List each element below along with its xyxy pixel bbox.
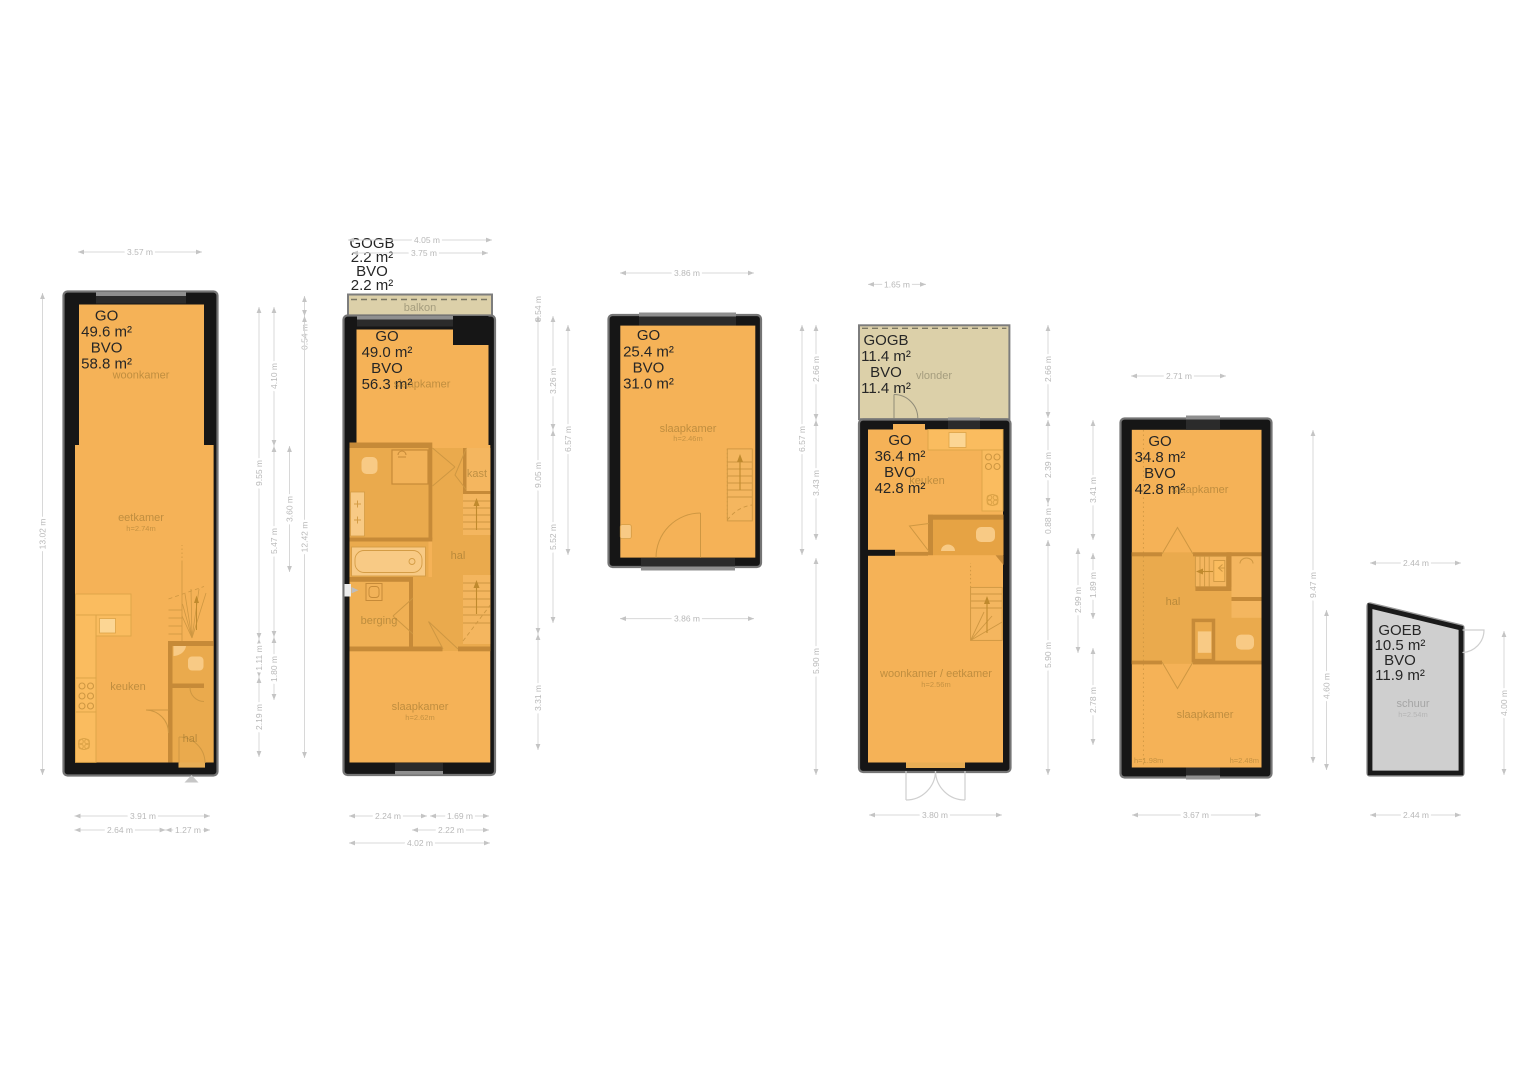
- svg-text:11.4 m²: 11.4 m²: [861, 380, 911, 397]
- svg-text:49.0 m²: 49.0 m²: [362, 344, 413, 361]
- svg-text:3.60 m: 3.60 m: [285, 496, 295, 522]
- svg-text:11.4 m²: 11.4 m²: [861, 348, 911, 365]
- svg-text:2.44 m: 2.44 m: [1403, 810, 1429, 820]
- svg-text:2.22 m: 2.22 m: [438, 825, 464, 835]
- svg-text:2.39 m: 2.39 m: [1043, 452, 1053, 478]
- svg-text:GO: GO: [1148, 433, 1171, 450]
- svg-text:49.6 m²: 49.6 m²: [81, 324, 132, 341]
- svg-text:9.05 m: 9.05 m: [533, 462, 543, 488]
- svg-text:keuken: keuken: [110, 681, 145, 693]
- svg-text:1.89 m: 1.89 m: [1088, 572, 1098, 598]
- svg-text:hal: hal: [451, 550, 466, 562]
- svg-text:4.02 m: 4.02 m: [407, 838, 433, 848]
- svg-text:slaapkamer: slaapkamer: [1172, 484, 1229, 496]
- svg-text:1.80 m: 1.80 m: [269, 656, 279, 682]
- svg-text:1.27 m: 1.27 m: [175, 825, 201, 835]
- svg-text:h=1.98m: h=1.98m: [1134, 756, 1163, 765]
- svg-text:4.05 m: 4.05 m: [414, 235, 440, 245]
- svg-text:3.26 m: 3.26 m: [548, 368, 558, 394]
- svg-text:BVO: BVO: [371, 360, 403, 377]
- svg-text:4.00 m: 4.00 m: [1499, 690, 1509, 716]
- svg-text:BVO: BVO: [1144, 465, 1176, 482]
- svg-text:hal: hal: [183, 733, 198, 745]
- svg-text:3.31 m: 3.31 m: [533, 685, 543, 711]
- svg-text:3.57 m: 3.57 m: [127, 247, 153, 257]
- svg-text:13.02 m: 13.02 m: [38, 519, 48, 550]
- svg-text:5.52 m: 5.52 m: [548, 524, 558, 550]
- svg-text:3.41 m: 3.41 m: [1088, 477, 1098, 503]
- svg-text:6.57 m: 6.57 m: [563, 426, 573, 452]
- svg-text:slaapkamer: slaapkamer: [1177, 709, 1234, 721]
- svg-text:2.71 m: 2.71 m: [1166, 371, 1192, 381]
- svg-text:2.78 m: 2.78 m: [1088, 687, 1098, 713]
- svg-text:1.11 m: 1.11 m: [254, 645, 264, 670]
- svg-text:kast: kast: [467, 468, 487, 480]
- svg-text:11.9 m²: 11.9 m²: [1375, 667, 1425, 684]
- svg-text:GO: GO: [637, 327, 660, 344]
- svg-text:2.24 m: 2.24 m: [375, 811, 401, 821]
- svg-text:4.10 m: 4.10 m: [269, 363, 279, 389]
- svg-text:BVO: BVO: [633, 360, 665, 377]
- svg-text:3.43 m: 3.43 m: [811, 470, 821, 496]
- svg-text:6.57 m: 6.57 m: [797, 426, 807, 452]
- svg-text:GO: GO: [95, 308, 118, 325]
- svg-text:h=2.48m: h=2.48m: [1230, 756, 1259, 765]
- svg-text:berging: berging: [361, 615, 398, 627]
- svg-text:3.91 m: 3.91 m: [130, 811, 156, 821]
- svg-text:3.80 m: 3.80 m: [922, 810, 948, 820]
- svg-text:GOGB: GOGB: [863, 332, 908, 349]
- svg-text:12.42 m: 12.42 m: [300, 522, 310, 553]
- svg-text:woonkamer / eetkamer: woonkamer / eetkamer: [879, 668, 992, 680]
- svg-text:4.60 m: 4.60 m: [1322, 673, 1332, 699]
- svg-text:5.47 m: 5.47 m: [269, 528, 279, 554]
- svg-text:h=2.74m: h=2.74m: [126, 524, 155, 533]
- svg-text:2.2 m²: 2.2 m²: [351, 277, 394, 294]
- svg-text:2.66 m: 2.66 m: [1043, 356, 1053, 382]
- svg-text:BVO: BVO: [870, 364, 902, 381]
- svg-text:1.65 m: 1.65 m: [884, 279, 910, 289]
- svg-text:34.8 m²: 34.8 m²: [1135, 449, 1186, 466]
- svg-text:keuken: keuken: [909, 475, 944, 487]
- svg-text:3.86 m: 3.86 m: [674, 614, 700, 624]
- svg-text:0.88 m: 0.88 m: [1043, 508, 1053, 534]
- svg-text:h=2.46m: h=2.46m: [673, 434, 702, 443]
- svg-text:2.66 m: 2.66 m: [811, 356, 821, 382]
- svg-text:woonkamer: woonkamer: [112, 370, 170, 382]
- svg-text:3.86 m: 3.86 m: [674, 268, 700, 278]
- svg-text:36.4 m²: 36.4 m²: [875, 448, 926, 465]
- svg-text:hal: hal: [1166, 596, 1181, 608]
- svg-text:5.90 m: 5.90 m: [811, 648, 821, 674]
- svg-text:9.55 m: 9.55 m: [254, 460, 264, 486]
- svg-text:3.75 m: 3.75 m: [411, 248, 437, 258]
- svg-text:31.0 m²: 31.0 m²: [623, 376, 674, 393]
- svg-text:BVO: BVO: [91, 340, 123, 357]
- svg-text:9.47 m: 9.47 m: [1308, 572, 1318, 598]
- svg-text:h=2.54m: h=2.54m: [1398, 710, 1427, 719]
- svg-text:slaapkamer: slaapkamer: [392, 701, 449, 713]
- svg-text:h=2.62m: h=2.62m: [405, 713, 434, 722]
- svg-text:slaapkamer: slaapkamer: [394, 379, 451, 391]
- svg-text:schuur: schuur: [1396, 698, 1429, 710]
- svg-text:2.44 m: 2.44 m: [1403, 558, 1429, 568]
- svg-text:5.90 m: 5.90 m: [1043, 642, 1053, 668]
- svg-text:GO: GO: [375, 328, 398, 345]
- svg-text:eetkamer: eetkamer: [118, 512, 164, 524]
- svg-text:2.64 m: 2.64 m: [107, 825, 133, 835]
- svg-text:25.4 m²: 25.4 m²: [623, 344, 674, 361]
- svg-text:GO: GO: [888, 432, 911, 449]
- svg-text:3.67 m: 3.67 m: [1183, 810, 1209, 820]
- svg-text:vlonder: vlonder: [916, 370, 952, 382]
- svg-text:balkon: balkon: [404, 302, 436, 314]
- svg-text:h=2.56m: h=2.56m: [921, 680, 950, 689]
- svg-text:1.69 m: 1.69 m: [447, 811, 473, 821]
- svg-text:2.99 m: 2.99 m: [1073, 587, 1083, 613]
- svg-text:2.19 m: 2.19 m: [254, 704, 264, 730]
